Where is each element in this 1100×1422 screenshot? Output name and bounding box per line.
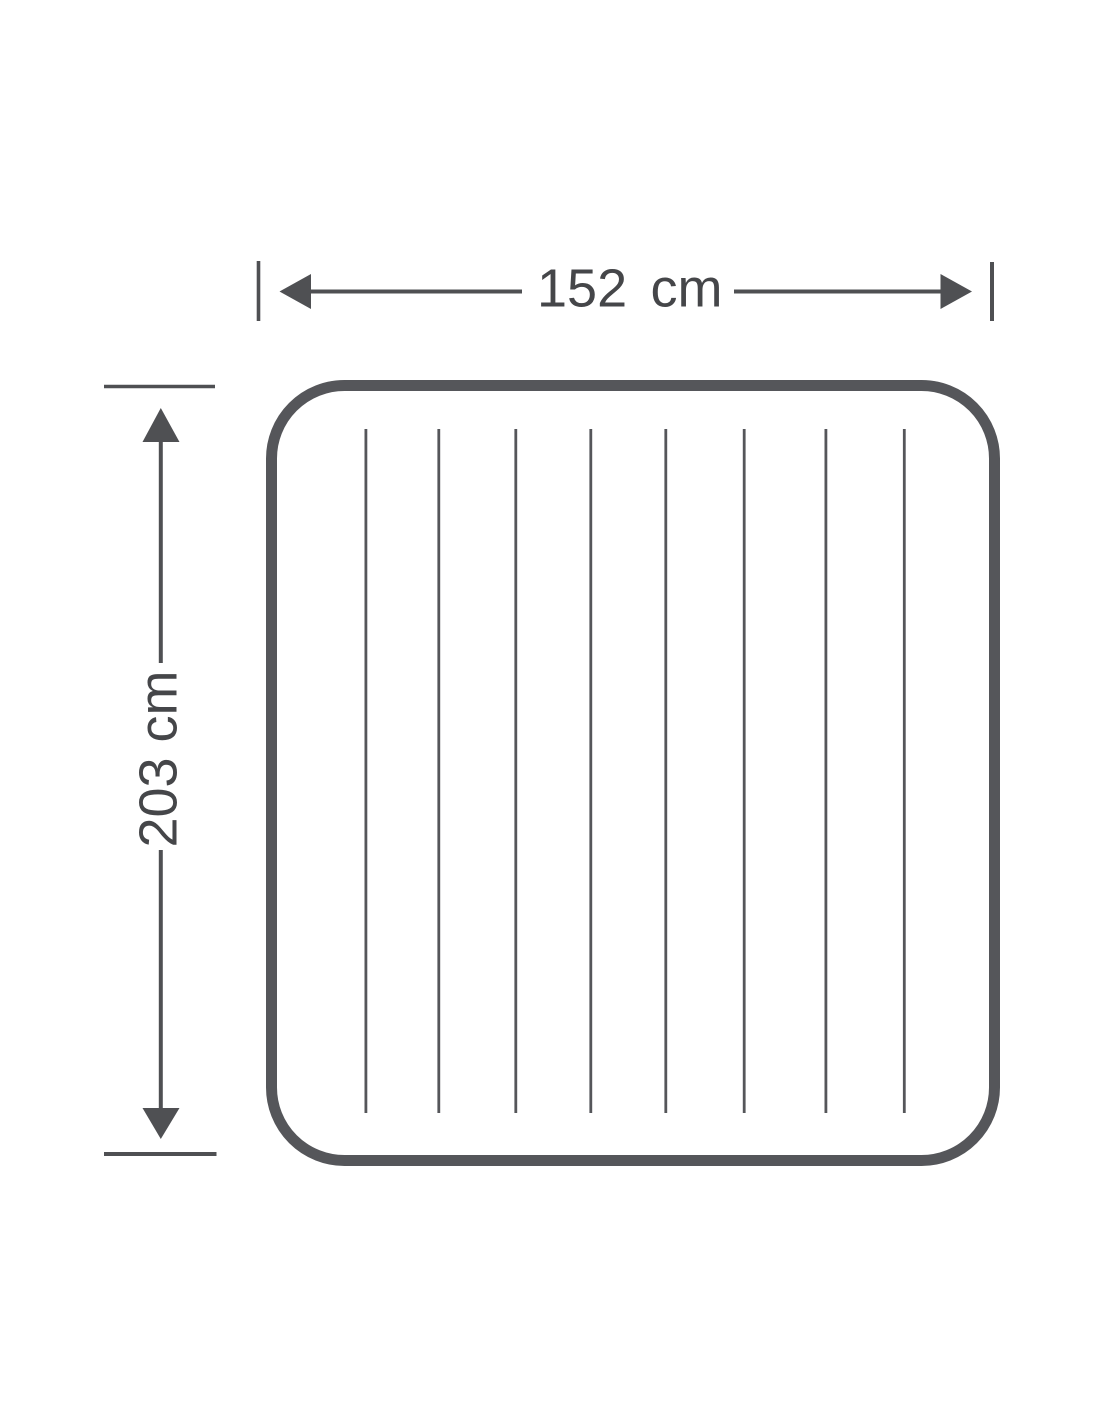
svg-text:203 cm: 203 cm — [129, 670, 189, 847]
svg-text:cm: cm — [651, 259, 723, 319]
svg-text:152: 152 — [537, 259, 627, 319]
